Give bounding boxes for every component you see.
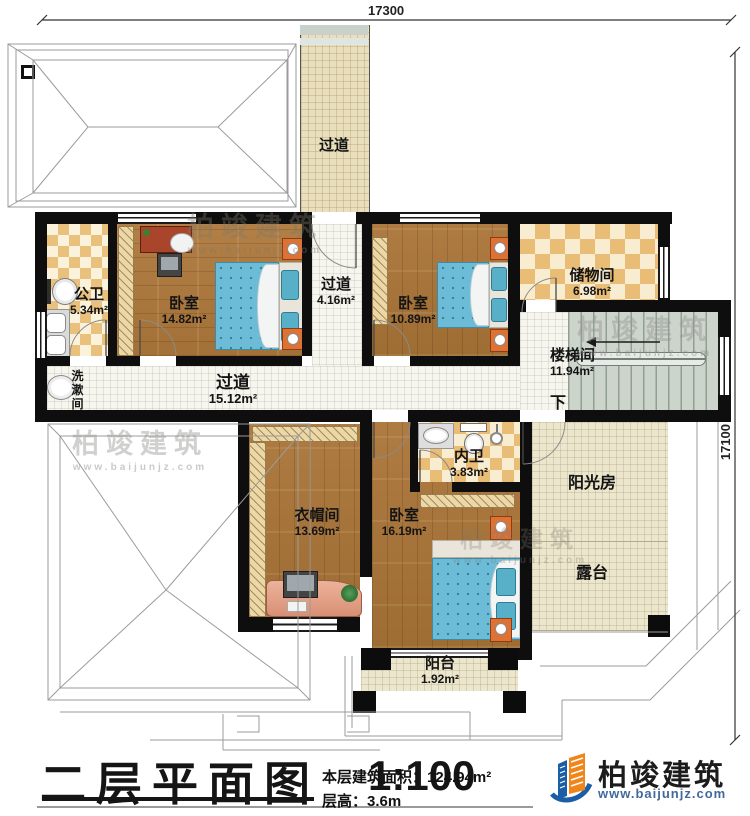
brand-logo-icon (546, 748, 596, 806)
plan-title: 二层平面图 (40, 748, 320, 814)
room-label-cloakroom: 衣帽间13.69m² (294, 508, 339, 538)
wall (556, 300, 730, 312)
wall (108, 224, 117, 358)
wall (508, 224, 520, 366)
wall (302, 224, 312, 356)
plant-icon (341, 585, 358, 602)
wall (35, 410, 372, 422)
room-label-ensuite: 内卫3.83m² (450, 449, 488, 479)
floor-area-text: 本层建筑面积：124.94m² (322, 766, 491, 787)
wardrobe-cloakroom-top (252, 426, 358, 442)
wall (362, 224, 372, 356)
brand-site: www.baijunjz.com (598, 786, 726, 801)
room-label-balcony: 阳台1.92m² (421, 656, 459, 686)
nightstand-lamp-icon (282, 238, 304, 260)
wall (658, 224, 670, 247)
wardrobe-bedroom-1 (118, 226, 134, 356)
wall (452, 482, 520, 492)
room-label-bedroom-1: 卧室14.82m² (162, 296, 207, 326)
room-label-storage: 储物间6.98m² (569, 268, 614, 298)
watermark: 柏竣建筑www.baijunjz.com (25, 422, 255, 473)
wall (520, 422, 532, 658)
window (118, 212, 196, 224)
wall (337, 617, 360, 632)
title-underline (42, 797, 314, 801)
wall (362, 356, 374, 366)
room-label-public-bath: 公卫5.34m² (70, 287, 108, 317)
column (488, 648, 518, 670)
room-label-bedroom-3: 卧室16.19m² (382, 508, 427, 538)
column (503, 691, 526, 713)
dimension-width: 17300 (368, 3, 404, 18)
room-label-corridor-mid: 过道4.16m² (317, 277, 355, 307)
window (400, 212, 480, 224)
wall (410, 356, 508, 366)
wall (238, 617, 273, 632)
nightstand-lamp-icon (490, 618, 512, 642)
wall (565, 410, 730, 422)
floor-corridor-main (47, 366, 520, 410)
nightstand-lamp-icon (490, 516, 512, 540)
wall (360, 422, 372, 577)
window (658, 247, 670, 298)
room-label-stairwell: 楼梯间11.94m² (550, 348, 595, 378)
bed-bedroom-2 (437, 262, 510, 328)
sink-basin-2 (46, 335, 66, 355)
nightstand-lamp-icon (490, 329, 510, 352)
wall (238, 422, 249, 632)
title-underline-2 (37, 806, 533, 808)
keyboard-icon (287, 601, 307, 612)
floor-height-text: 层高：3.6m (322, 790, 401, 811)
wall (480, 212, 672, 224)
window (273, 617, 337, 632)
roof-chimney (21, 65, 35, 79)
desk-plant-icon (143, 229, 150, 236)
shower-head-icon (490, 432, 503, 445)
room-label-corridor-main: 过道15.12m² (209, 373, 257, 407)
chair-bedroom-1 (170, 233, 194, 253)
wardrobe-bedroom-2 (372, 237, 388, 325)
wall (718, 300, 731, 337)
room-label-washroom: 洗漱间 (70, 370, 85, 411)
floor-corridor-top (300, 25, 370, 212)
wall (356, 212, 400, 224)
window (35, 312, 47, 358)
room-label-sunroom: 阳光房 (568, 475, 616, 493)
wall (176, 356, 302, 366)
wall (518, 648, 532, 660)
column (353, 691, 376, 713)
wall (35, 212, 118, 224)
sunroom-terrace-divider (532, 541, 668, 542)
floor-sunroom-terrace (532, 422, 668, 631)
wall (520, 300, 526, 312)
closet-bedroom-3 (420, 494, 515, 508)
window (718, 337, 731, 395)
ensuite-toilet-tank (460, 423, 487, 432)
computer-monitor-icon (283, 571, 318, 598)
floor-plan: 过道 公卫5.34m² 卧室14.82m² 过道4.16m² 卧室10.89m²… (0, 0, 750, 816)
sink-basin-1 (46, 313, 66, 333)
stair-down-label: 下 (550, 389, 566, 413)
wall (408, 410, 520, 422)
dimension-height: 17100 (718, 424, 733, 460)
wardrobe-cloakroom-left (249, 442, 266, 617)
corridor-top-landing-band (300, 25, 368, 35)
column (648, 615, 670, 637)
room-label-bedroom-2: 卧室10.89m² (391, 296, 436, 326)
corridor-top-landing-band2 (300, 38, 368, 45)
nightstand-lamp-icon (282, 328, 304, 350)
nightstand-lamp-icon (490, 237, 510, 260)
wall (35, 212, 47, 312)
stair-handrail (576, 352, 706, 366)
room-label-corridor-top: 过道 (319, 138, 349, 155)
wall (196, 212, 312, 224)
computer-monitor-icon (157, 253, 182, 277)
wall (410, 482, 420, 492)
column (361, 648, 391, 670)
wall (106, 356, 140, 366)
room-label-terrace: 露台 (576, 565, 608, 583)
ensuite-sink (423, 427, 449, 444)
